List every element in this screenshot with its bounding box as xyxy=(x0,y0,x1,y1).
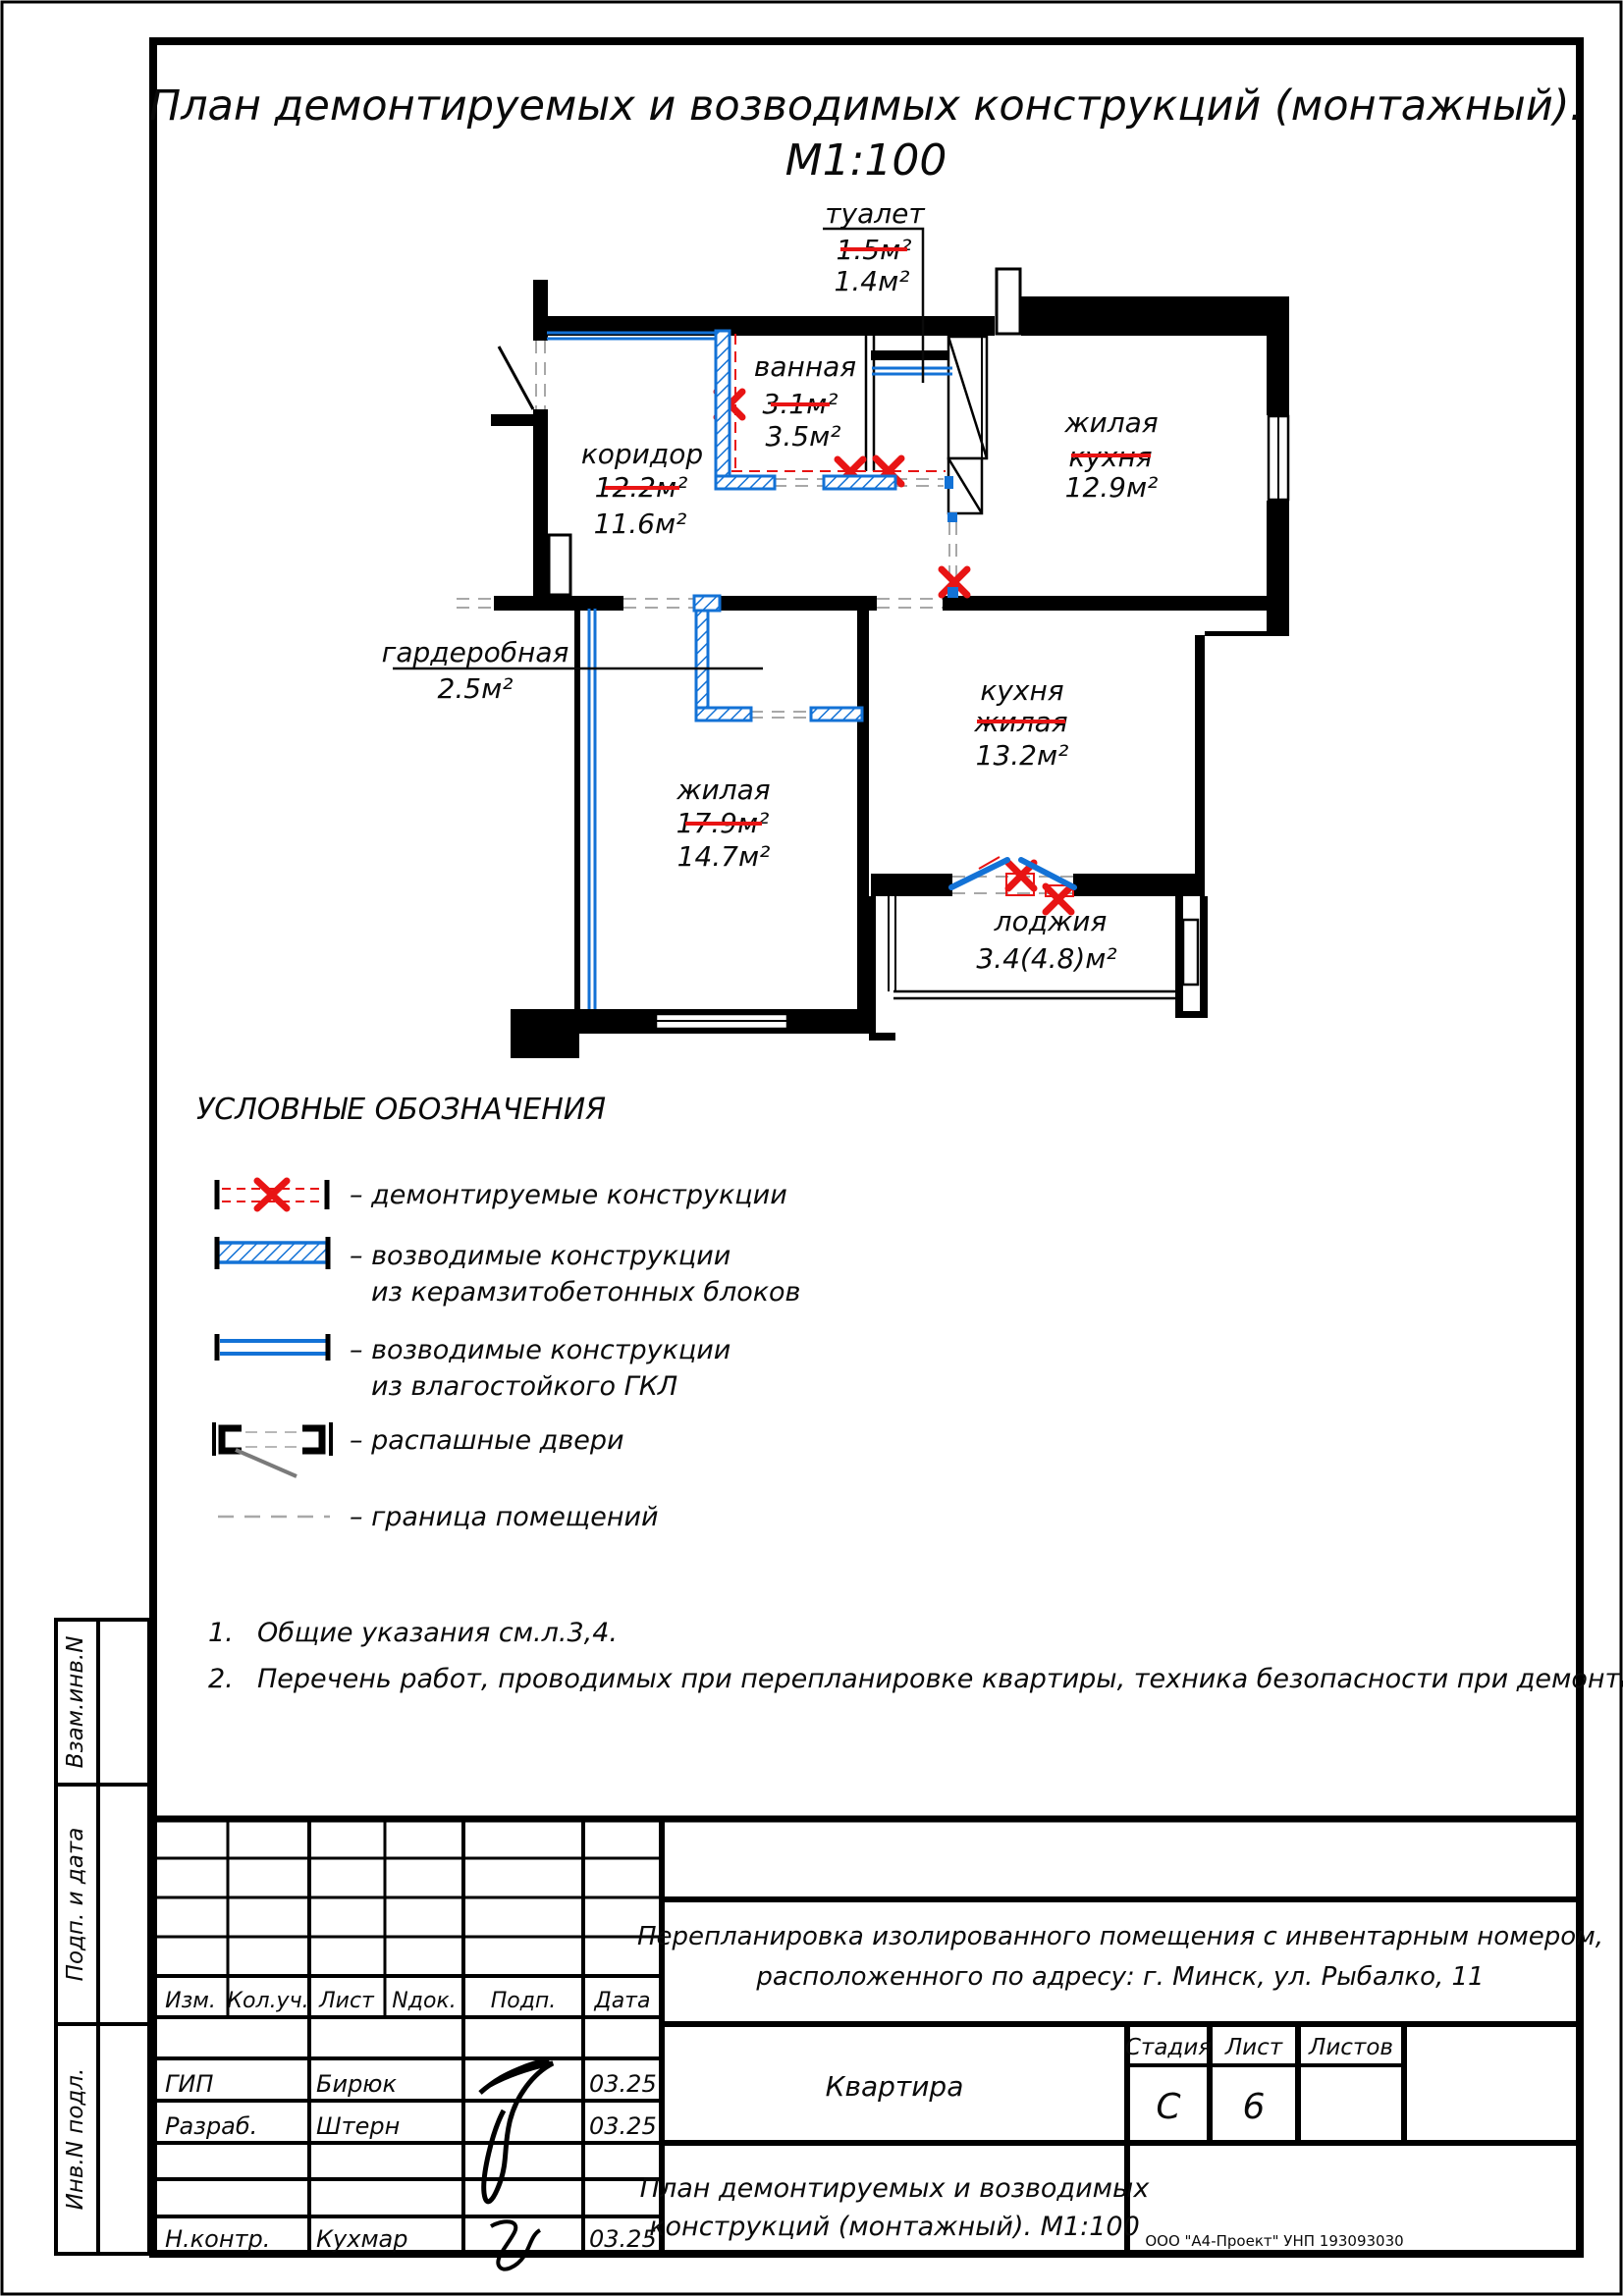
frame-sidebar: Взам.инв.N Подп. и дата Инв.N подл. xyxy=(56,1620,149,2254)
legend-x-icon xyxy=(257,1181,287,1208)
sheet-title: План демонтируемых и возводимых конструк… xyxy=(149,81,1584,186)
svg-text:из влагостойкого ГКЛ: из влагостойкого ГКЛ xyxy=(371,1371,677,1402)
facade-pilaster xyxy=(997,269,1020,334)
svg-text:03.25: 03.25 xyxy=(589,2070,657,2098)
svg-text:Общие указания см.л.3,4.: Общие указания см.л.3,4. xyxy=(257,1618,618,1648)
legend-hatch-bar-icon xyxy=(218,1243,327,1262)
legend: УСЛОВНЫЕ ОБОЗНАЧЕНИЯ – демонтируемые кон… xyxy=(196,1093,800,1532)
svg-text:из керамзитобетонных блоков: из керамзитобетонных блоков xyxy=(371,1277,800,1308)
svg-text:коридор: коридор xyxy=(581,438,703,470)
svg-text:Кол.уч.: Кол.уч. xyxy=(227,1989,308,2013)
demolition-x-marks xyxy=(717,392,1071,912)
legend-item-demolished: – демонтируемые конструкции xyxy=(217,1180,787,1210)
drawing-canvas: План демонтируемых и возводимых конструк… xyxy=(0,0,1623,2296)
room-label-toilet: туалет 1.5м² 1.4м² xyxy=(825,197,925,297)
notes: 1. Общие указания см.л.3,4. 2. Перечень … xyxy=(208,1618,1623,1694)
gkl-walls xyxy=(547,333,952,1009)
svg-text:Штерн: Штерн xyxy=(316,2112,400,2140)
svg-text:2.: 2. xyxy=(208,1664,234,1694)
sheet-title-line2: М1:100 xyxy=(785,135,947,186)
drawing-sheet: План демонтируемых и возводимых конструк… xyxy=(0,0,1623,2296)
svg-text:ванная: ванная xyxy=(754,350,856,383)
svg-text:жилая: жилая xyxy=(676,774,770,806)
legend-door-jamb-right-icon xyxy=(302,1428,322,1451)
svg-text:ГИП: ГИП xyxy=(165,2070,213,2098)
legend-item-new-blocks: – возводимые конструкции из керамзитобет… xyxy=(217,1237,800,1308)
room-label-living-bottom-left: жилая 17.9м² 14.7м² xyxy=(676,774,770,873)
stage-label: Стадия xyxy=(1125,2035,1212,2060)
door-leaf xyxy=(499,347,533,409)
svg-text:Н.контр.: Н.контр. xyxy=(165,2225,270,2253)
svg-text:2.5м²: 2.5м² xyxy=(438,672,514,705)
svg-text:Перечень работ, проводимых при: Перечень работ, проводимых при переплани… xyxy=(257,1664,1623,1694)
svg-text:– граница помещений: – граница помещений xyxy=(350,1502,659,1532)
loggia-pier-notch xyxy=(1183,920,1198,985)
svg-text:кухня: кухня xyxy=(980,674,1063,707)
svg-text:14.7м²: 14.7м² xyxy=(677,840,771,873)
sheet-title-line1: План демонтируемых и возводимых конструк… xyxy=(149,81,1584,131)
wall-niche xyxy=(549,535,570,595)
svg-text:– возводимые конструкции: – возводимые конструкции xyxy=(350,1241,730,1271)
project-line2: расположенного по адресу: г. Минск, ул. … xyxy=(755,1962,1484,1992)
svg-text:Кухмар: Кухмар xyxy=(316,2225,408,2253)
room-label-kitchen: кухня жилая 13.2м² xyxy=(973,674,1068,772)
title-block: Изм. Кол.уч. Лист Nдок. Подп. Дата ГИП Б… xyxy=(153,1819,1603,2269)
sidebar-label-1: Взам.инв.N xyxy=(63,1636,88,1769)
floor-plan: туалет 1.5м² 1.4м² ванная 3.1м² 3.5м² ко… xyxy=(382,197,1289,1058)
sidebar-label-2: Подп. и дата xyxy=(63,1828,88,1982)
svg-text:12.9м²: 12.9м² xyxy=(1065,471,1159,504)
legend-gkl-bar-icon xyxy=(220,1341,326,1354)
doc-title-line2: конструкций (монтажный). М1:100 xyxy=(649,2212,1140,2242)
room-label-loggia: лоджия 3.4(4.8)м² xyxy=(976,905,1116,975)
doc-title-line1: План демонтируемых и возводимых xyxy=(640,2173,1151,2204)
svg-text:3.4(4.8)м²: 3.4(4.8)м² xyxy=(976,942,1116,975)
svg-text:Лист: Лист xyxy=(318,1989,375,2013)
svg-text:– демонтируемые конструкции: – демонтируемые конструкции xyxy=(350,1180,787,1210)
signatures xyxy=(480,2059,553,2269)
svg-text:туалет: туалет xyxy=(825,197,925,230)
room-label-corridor: коридор 12.2м² 11.6м² xyxy=(581,438,703,540)
sheets-label: Листов xyxy=(1308,2035,1393,2060)
sheet-value: 6 xyxy=(1243,2087,1266,2127)
svg-text:Бирюк: Бирюк xyxy=(316,2070,398,2098)
legend-door-jamb-left-icon xyxy=(222,1428,242,1451)
svg-text:13.2м²: 13.2м² xyxy=(976,739,1069,772)
room-label-living-top-right: жилая кухня 12.9м² xyxy=(1063,406,1158,504)
svg-text:Изм.: Изм. xyxy=(165,1989,216,2013)
svg-text:3.5м²: 3.5м² xyxy=(766,420,841,453)
svg-text:– возводимые конструкции: – возводимые конструкции xyxy=(350,1335,730,1365)
svg-text:жилая: жилая xyxy=(1063,406,1158,439)
svg-text:– распашные двери: – распашные двери xyxy=(350,1425,624,1456)
legend-item-new-gkl: – возводимые конструкции из влагостойког… xyxy=(217,1334,730,1402)
svg-text:лоджия: лоджия xyxy=(994,905,1108,937)
room-label-wardrobe: гардеробная 2.5м² xyxy=(382,636,569,705)
titleblock-header-row: Изм. Кол.уч. Лист Nдок. Подп. Дата xyxy=(165,1989,650,2013)
room-label-bathroom: ванная 3.1м² 3.5м² xyxy=(754,350,856,453)
sidebar-label-3: Инв.N подл. xyxy=(63,2068,88,2211)
svg-text:1.: 1. xyxy=(208,1618,234,1648)
svg-text:Nдок.: Nдок. xyxy=(392,1989,456,2013)
svg-text:Подп.: Подп. xyxy=(491,1989,557,2013)
svg-text:Разраб.: Разраб. xyxy=(165,2112,257,2140)
legend-item-boundary: – граница помещений xyxy=(218,1502,659,1532)
svg-text:03.25: 03.25 xyxy=(589,2112,657,2140)
stage-value: С xyxy=(1156,2087,1181,2127)
legend-door-leaf-icon xyxy=(236,1450,297,1476)
project-line1: Перепланировка изолированного помещения … xyxy=(637,1922,1603,1951)
svg-text:03.25: 03.25 xyxy=(589,2225,657,2253)
legend-item-doors: – распашные двери xyxy=(214,1422,624,1476)
svg-text:11.6м²: 11.6м² xyxy=(594,507,687,540)
wall-details xyxy=(499,269,1288,1029)
svg-text:1.4м²: 1.4м² xyxy=(835,265,910,297)
object-name: Квартира xyxy=(826,2070,964,2103)
company-name: ООО "А4-Проект" УНП 193093030 xyxy=(1145,2232,1403,2250)
svg-text:Дата: Дата xyxy=(594,1989,651,2013)
legend-title: УСЛОВНЫЕ ОБОЗНАЧЕНИЯ xyxy=(196,1093,606,1127)
svg-text:гардеробная: гардеробная xyxy=(382,636,569,668)
sheet-label: Лист xyxy=(1224,2035,1283,2060)
signature-ncontr xyxy=(491,2221,540,2269)
